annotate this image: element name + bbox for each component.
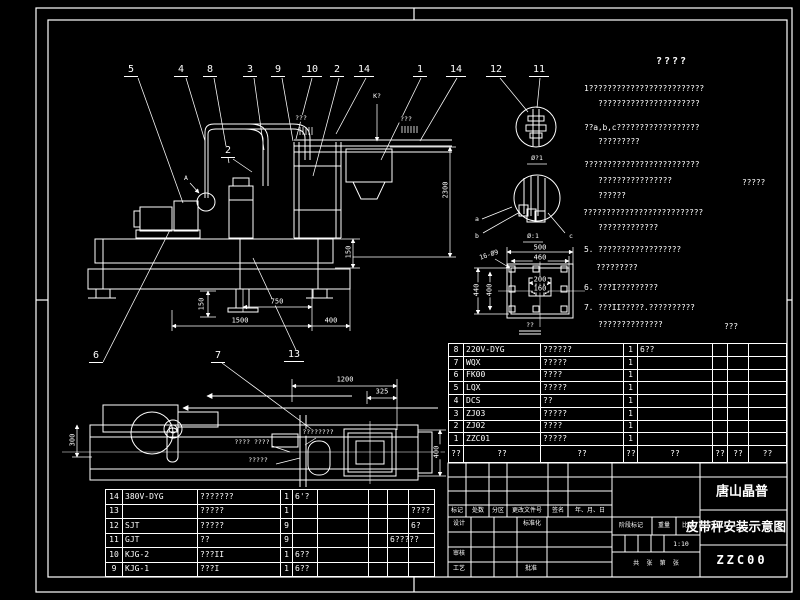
parts-row: 9 KJG-1 ???I 1 6?? <box>106 562 435 577</box>
cell: 6????? <box>388 533 409 548</box>
note-line: ?????????????? <box>598 321 663 329</box>
header-cell: ?? <box>713 446 728 463</box>
parts-row: 14 380V-DYG ??????? 1 6'? <box>106 490 435 505</box>
header-cell: ?? <box>464 446 541 463</box>
cell-no: 13 <box>106 504 123 519</box>
cell-no: 8 <box>449 344 464 357</box>
dim-text: 400 <box>487 283 494 298</box>
cell-name: ???? <box>541 420 624 433</box>
cell <box>318 548 369 563</box>
note-line: ????????? <box>598 138 640 146</box>
dim-text: 150 <box>346 245 353 260</box>
title-block-label: 标记 <box>451 508 463 514</box>
cell <box>318 504 369 519</box>
cell <box>318 490 369 505</box>
cell <box>728 356 749 369</box>
dim-text: 500 <box>533 245 548 252</box>
cell-code: 380V-DYG <box>123 490 198 505</box>
scale-value: 1:10 <box>673 541 689 548</box>
cell <box>728 407 749 420</box>
cell <box>713 356 728 369</box>
cell-remark: 6'? <box>293 490 318 505</box>
cell <box>388 519 409 534</box>
title-block-label: 年、月、日 <box>575 508 605 514</box>
cell <box>318 562 369 577</box>
annotation-text: ???????? <box>301 429 334 436</box>
cell-remark <box>638 356 713 369</box>
plan-view <box>62 396 445 487</box>
cell-no: 1 <box>449 433 464 446</box>
cell-name: ?? <box>198 533 281 548</box>
header-cell: ?? <box>449 446 464 463</box>
cell-code: ZJ02 <box>464 420 541 433</box>
dim-text: 300 <box>70 433 77 448</box>
cell-qty: 9 <box>281 519 293 534</box>
title-block-label: 共 张 第 张 <box>633 561 679 567</box>
title-block-label: 审核 <box>453 551 465 557</box>
dim-text: 400 <box>434 445 441 460</box>
cell-remark <box>638 433 713 446</box>
dim-text: 325 <box>375 389 390 396</box>
note-line: ????????????? <box>598 224 658 232</box>
cell <box>728 395 749 408</box>
cell <box>318 519 369 534</box>
parts-row: 2 ZJ02 ???? 1 <box>449 420 787 433</box>
dim-text: 160 <box>533 286 548 293</box>
cell-no: 12 <box>106 519 123 534</box>
cell-name: ????? <box>541 407 624 420</box>
balloon-number: 14 <box>446 65 466 77</box>
cell-remark <box>293 519 318 534</box>
cell-code: 220V-DYG <box>464 344 541 357</box>
cell <box>728 344 749 357</box>
title-block-label: 批准 <box>525 566 537 572</box>
dim-text: 750 <box>270 299 285 306</box>
cell <box>749 369 787 382</box>
annotation-text: ?? <box>525 322 535 329</box>
cell-no: 9 <box>106 562 123 577</box>
cell-qty: 1 <box>281 548 293 563</box>
balloon-number: 11 <box>529 65 549 77</box>
title-block-label: 阶段标记 <box>619 523 643 529</box>
cell <box>713 433 728 446</box>
balloon-number: 7 <box>211 351 225 363</box>
cell-code: KJG-2 <box>123 548 198 563</box>
cell <box>713 407 728 420</box>
cell-qty: 1 <box>624 356 638 369</box>
balloon-number: 1 <box>413 65 427 77</box>
balloon-number: 9 <box>271 65 285 77</box>
cell <box>728 369 749 382</box>
header-cell: ?? <box>638 446 713 463</box>
title-block-label: 工艺 <box>453 566 465 572</box>
cell-name: ????? <box>541 433 624 446</box>
parts-header-row: ???????????????? <box>449 446 787 463</box>
company-name: 唐山晶普 <box>716 486 768 499</box>
title-block-label: 设计 <box>453 521 465 527</box>
dim-text: 460 <box>533 255 548 262</box>
cell: ???? <box>409 504 435 519</box>
cell-remark <box>293 533 318 548</box>
balloon-number: 14 <box>354 65 374 77</box>
cell <box>749 344 787 357</box>
parts-row: 3 ZJ03 ????? 1 <box>449 407 787 420</box>
detail-circles <box>514 107 560 242</box>
cell-code: KJG-1 <box>123 562 198 577</box>
cell <box>749 420 787 433</box>
note-line: ?????????????????????? <box>598 100 700 108</box>
header-cell: ?? <box>624 446 638 463</box>
dim-text: 1200 <box>336 377 355 384</box>
note-line: 7. ???II?????.?????????? <box>584 304 695 312</box>
cell-remark <box>638 382 713 395</box>
cell <box>749 433 787 446</box>
dim-text: 440 <box>474 283 481 298</box>
cell <box>369 548 388 563</box>
cell-qty: 1 <box>624 382 638 395</box>
annotation-text: K? <box>372 93 382 100</box>
cell-remark <box>638 395 713 408</box>
cell <box>369 562 388 577</box>
cell-no: 7 <box>449 356 464 369</box>
balloon-number: 10 <box>302 65 322 77</box>
cell-qty: 1 <box>624 344 638 357</box>
cell-qty: 1 <box>281 490 293 505</box>
cell <box>369 504 388 519</box>
annotation-text: c <box>568 233 574 240</box>
dim-text: 2300 <box>443 181 450 200</box>
cell-remark: 6?? <box>293 548 318 563</box>
annotation-text: a <box>474 216 480 223</box>
cell <box>369 519 388 534</box>
cell-no: 10 <box>106 548 123 563</box>
cell <box>409 548 435 563</box>
note-line: ??a,b,c?????????????????? <box>584 124 699 132</box>
balloon-number: 6 <box>89 351 103 363</box>
cell-code: ZJ03 <box>464 407 541 420</box>
annotation-text: Ø:1 <box>526 233 540 240</box>
parts-list-upper: 8 220V-DYG ?????? 1 6?? 7 WQX ????? 1 <box>448 343 787 463</box>
cell <box>749 407 787 420</box>
note-line: 6. ???I????????? <box>584 284 658 292</box>
cell-qty: 9 <box>281 533 293 548</box>
cell-code: GJT <box>123 533 198 548</box>
cell-no: 4 <box>449 395 464 408</box>
cell-code: FK00 <box>464 369 541 382</box>
cell <box>713 395 728 408</box>
cell <box>749 395 787 408</box>
cell-no: 3 <box>449 407 464 420</box>
annotation-text: ??? <box>294 115 308 122</box>
cell-no: 2 <box>449 420 464 433</box>
parts-row: 11 GJT ?? 9 6????? <box>106 533 435 548</box>
cell <box>318 533 369 548</box>
cell-name: ????? <box>198 504 281 519</box>
cell <box>409 562 435 577</box>
cell-remark: 6?? <box>293 562 318 577</box>
cell-code: WQX <box>464 356 541 369</box>
drawing-title: 皮带秤安装示意图 <box>686 521 786 534</box>
balloon-number: 5 <box>124 65 138 77</box>
cell-remark <box>638 407 713 420</box>
parts-row: 6 FK00 ???? 1 <box>449 369 787 382</box>
cell-code: ZZC01 <box>464 433 541 446</box>
note-line: ????? <box>742 179 765 187</box>
cell-code <box>123 504 198 519</box>
cell-remark <box>293 504 318 519</box>
parts-list-lower: 14 380V-DYG ??????? 1 6'? 13 ????? 1 <box>105 489 435 577</box>
parts-row: 7 WQX ????? 1 <box>449 356 787 369</box>
parts-row: 13 ????? 1 ???? <box>106 504 435 519</box>
cell-name: ????? <box>198 519 281 534</box>
cell-qty: 1 <box>281 504 293 519</box>
title-block-label: 签名 <box>552 508 564 514</box>
header-cell: ?? <box>728 446 749 463</box>
cell <box>713 344 728 357</box>
parts-row: 4 DCS ?? 1 <box>449 395 787 408</box>
annotation-text: b <box>474 233 480 240</box>
annotation-text: 16-Ø9 <box>478 249 501 262</box>
elevation-view <box>88 124 452 312</box>
cell <box>728 382 749 395</box>
cell-qty: 1 <box>624 395 638 408</box>
cell-code: LQX <box>464 382 541 395</box>
note-line: 1????????????????????????? <box>584 85 704 93</box>
cell <box>388 548 409 563</box>
cell-qty: 1 <box>281 562 293 577</box>
note-line: 5. ?????????????????? <box>584 246 681 254</box>
cell-no: 14 <box>106 490 123 505</box>
cell-name: ?? <box>541 395 624 408</box>
annotation-text: ???? ???? <box>233 439 270 446</box>
cell <box>728 433 749 446</box>
cell <box>409 490 435 505</box>
cell <box>749 356 787 369</box>
note-line: ?????? <box>598 192 626 200</box>
balloon-number: 3 <box>243 65 257 77</box>
title-block-label: 处数 <box>472 508 484 514</box>
drawing-number: ZZC00 <box>716 554 767 566</box>
notes-title: ???? <box>656 57 688 67</box>
cell-no: 5 <box>449 382 464 395</box>
cell-name: ????? <box>541 356 624 369</box>
cell: 6? <box>409 519 435 534</box>
cell <box>388 504 409 519</box>
dim-text: 150 <box>199 297 206 312</box>
note-line: ?????????????????????????? <box>583 209 703 217</box>
cell-name: ???II <box>198 548 281 563</box>
note-line: ??? <box>724 323 738 331</box>
cell <box>713 420 728 433</box>
annotation-text: Ø?1 <box>530 155 544 162</box>
dim-text: 400 <box>324 318 339 325</box>
annotation-text: ??? <box>399 116 413 123</box>
parts-row: 10 KJG-2 ???II 1 6?? <box>106 548 435 563</box>
cell-remark: 6?? <box>638 344 713 357</box>
cell-qty: 1 <box>624 420 638 433</box>
title-block-label: 分区 <box>492 508 504 514</box>
title-block-label: 标准化 <box>523 521 541 527</box>
balloon-number: 12 <box>486 65 506 77</box>
cell-qty: 1 <box>624 433 638 446</box>
cell <box>728 420 749 433</box>
title-block-label: 重量 <box>658 523 670 529</box>
cad-drawing-sheet: 8 220V-DYG ?????? 1 6?? 7 WQX ????? 1 <box>0 0 800 600</box>
cell <box>713 382 728 395</box>
parts-row: 1 ZZC01 ????? 1 <box>449 433 787 446</box>
cell-remark <box>638 420 713 433</box>
cell-remark <box>638 369 713 382</box>
balloon-number: 13 <box>284 350 304 362</box>
note-line: ????????????????????????? <box>584 161 699 169</box>
title-block-label: 更改文件号 <box>512 508 542 514</box>
parts-row: 5 LQX ????? 1 <box>449 382 787 395</box>
header-cell: ?? <box>541 446 624 463</box>
dim-text: 200 <box>533 277 548 284</box>
balloon-number: 8 <box>203 65 217 77</box>
note-line: ???????????????? <box>598 177 672 185</box>
cell-qty: 1 <box>624 369 638 382</box>
header-cell: ?? <box>749 446 787 463</box>
cell <box>713 369 728 382</box>
balloon-number: 2 <box>330 65 344 77</box>
cell-name: ??????? <box>198 490 281 505</box>
cell <box>388 490 409 505</box>
annotation-text: A <box>183 175 189 182</box>
cell <box>749 382 787 395</box>
cell-code: SJT <box>123 519 198 534</box>
balloon-number: 2 <box>221 146 235 158</box>
cell <box>369 533 388 548</box>
dim-text: 1500 <box>231 318 250 325</box>
base-plate-detail <box>495 258 585 334</box>
parts-row: 12 SJT ????? 9 6? <box>106 519 435 534</box>
cell-name: ???? <box>541 369 624 382</box>
cell-no: 11 <box>106 533 123 548</box>
balloon-number: 4 <box>174 65 188 77</box>
annotation-text: ????? <box>247 457 269 464</box>
cell-name: ???I <box>198 562 281 577</box>
cell-no: 6 <box>449 369 464 382</box>
cell-name: ????? <box>541 382 624 395</box>
parts-row: 8 220V-DYG ?????? 1 6?? <box>449 344 787 357</box>
cell <box>388 562 409 577</box>
cell-code: DCS <box>464 395 541 408</box>
cell-name: ?????? <box>541 344 624 357</box>
cell <box>369 490 388 505</box>
cell-qty: 1 <box>624 407 638 420</box>
note-line: ????????? <box>596 264 638 272</box>
